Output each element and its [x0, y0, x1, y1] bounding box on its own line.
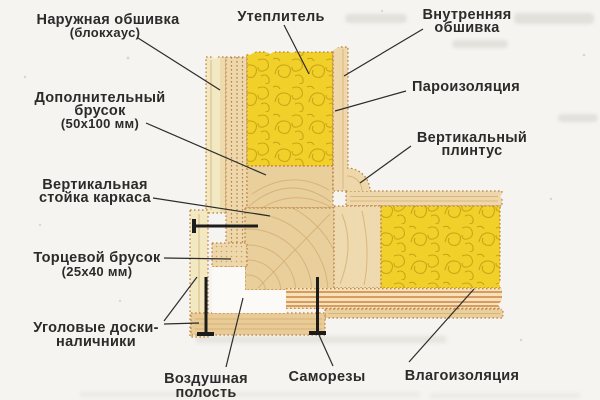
label-text: Влагоизоляция — [405, 368, 520, 384]
label-text: (25х40 мм) — [62, 264, 133, 279]
label-text: (50х100 мм) — [61, 116, 139, 131]
label-vlagoizolyatsiya: Влагоизоляция — [405, 368, 520, 384]
wall-corner-diagram: Наружная обшивка (блокхаус) Утеплитель В… — [0, 0, 600, 400]
corner-board-bottom — [191, 313, 325, 335]
label-text: обшивка — [434, 20, 500, 36]
label-text: плинтус — [442, 143, 503, 159]
insulation-top — [247, 52, 333, 166]
label-text: полость — [175, 385, 236, 400]
label-text: Саморезы — [288, 369, 365, 385]
sheathing-layers — [226, 57, 247, 248]
label-vozdushnaya-polost: Воздушная полость — [164, 371, 248, 400]
insulation-bottom — [381, 206, 500, 288]
outer-cladding-bottom — [325, 309, 503, 318]
outer-cladding-blockhouse — [206, 57, 226, 213]
end-bar — [212, 243, 247, 267]
label-text: наличники — [56, 334, 136, 350]
label-text: Утеплитель — [237, 9, 324, 25]
label-paroizolyatsiya: Пароизоляция — [412, 79, 520, 95]
inner-cladding — [333, 47, 348, 191]
label-text: стойка каркаса — [39, 190, 152, 206]
label-samorezy: Саморезы — [288, 369, 365, 385]
diagram-canvas: Наружная обшивка (блокхаус) Утеплитель В… — [0, 0, 600, 400]
label-text: (блокхаус) — [70, 25, 141, 40]
end-stud — [334, 206, 381, 288]
inner-cladding-bottom — [346, 191, 502, 206]
label-vnutrennyaya-obshivka: Внутренняя обшивка — [423, 7, 512, 36]
label-vertikalnaya-stoyka: Вертикальная стойка каркаса — [39, 177, 152, 206]
label-uteplitel: Утеплитель — [237, 9, 324, 25]
label-text: Пароизоляция — [412, 79, 520, 95]
